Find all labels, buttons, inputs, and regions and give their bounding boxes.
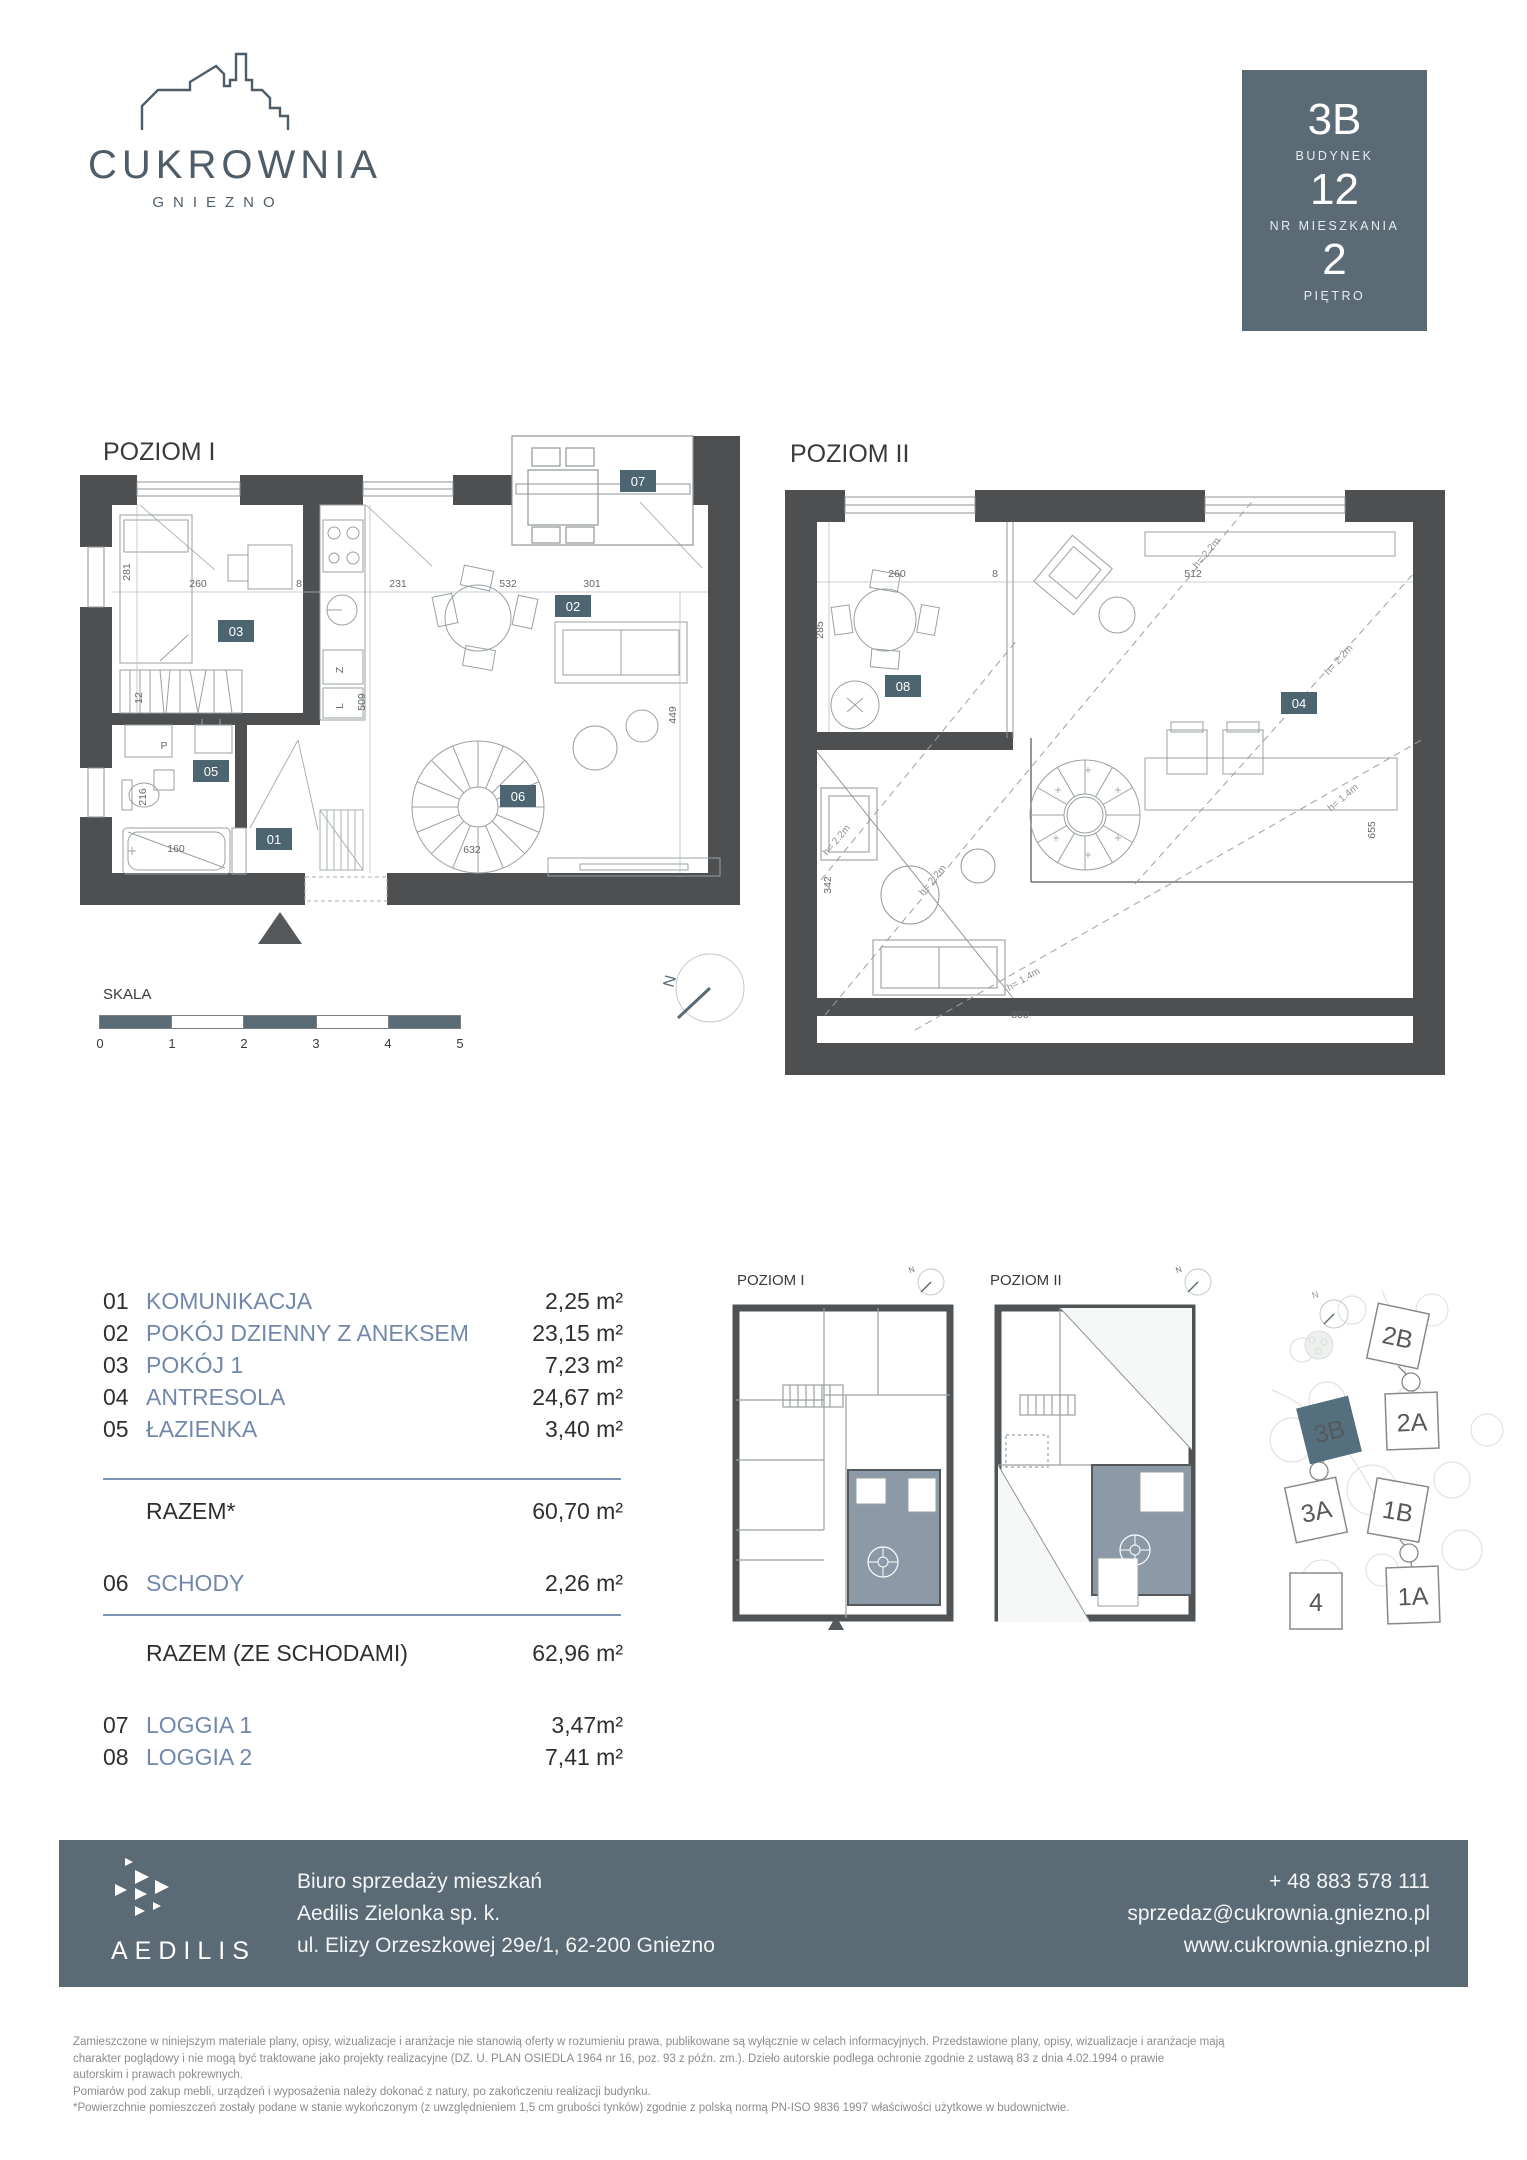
svg-text:P: P [160, 740, 167, 752]
room-name: POKÓJ DZIENNY Z ANEKSEM [146, 1320, 469, 1347]
room-area: 2,26 m² [545, 1570, 623, 1597]
room-number: 04 [103, 1384, 129, 1411]
plan2-loggia-furniture [831, 570, 939, 729]
svg-text:02: 02 [566, 599, 580, 614]
scale-tick: 5 [450, 1036, 470, 1051]
scale-seg [100, 1016, 171, 1028]
room-area: 7,23 m² [545, 1352, 623, 1379]
legal-disclaimer: Zamieszczone w niniejszym materiale plan… [73, 2034, 1473, 2117]
svg-text:2A: 2A [1396, 1408, 1428, 1437]
scale-seg [244, 1016, 315, 1028]
total-area: 62,96 m² [532, 1640, 623, 1667]
keyplan2-partitions [998, 1308, 1092, 1467]
area-row: 04 ANTRESOLA 24,67 m² [103, 1384, 623, 1414]
area-row: 05 ŁAZIENKA 3,40 m² [103, 1416, 623, 1446]
floorplan-sheet: CUKROWNIA GNIEZNO 3B BUDYNEK 12 NR MIESZ… [0, 0, 1527, 2160]
total-label: RAZEM* [146, 1498, 235, 1525]
svg-text:03: 03 [229, 624, 243, 639]
svg-text:12: 12 [133, 692, 145, 704]
svg-text:h= 2.2m: h= 2.2m [1323, 643, 1356, 677]
contact-info: + 48 883 578 111 sprzedaz@cukrownia.gnie… [1127, 1866, 1430, 1962]
room-number: 03 [103, 1352, 129, 1379]
room-name: ŁAZIENKA [146, 1416, 257, 1443]
room-area: 3,47m² [551, 1712, 623, 1739]
disclaimer-line: autorskim i prawach pokrewnych. [73, 2067, 1473, 2084]
floor-label: PIĘTRO [1304, 289, 1366, 303]
total-with-stairs-row: RAZEM (ZE SCHODAMI) 62,96 m² [103, 1640, 623, 1670]
svg-text:532: 532 [499, 578, 517, 590]
plan1-bedroom-furniture [120, 515, 292, 713]
svg-text:N: N [908, 1265, 917, 1276]
svg-text:8: 8 [992, 568, 998, 580]
email-address: sprzedaz@cukrownia.gniezno.pl [1127, 1898, 1430, 1930]
svg-text:216: 216 [137, 788, 149, 806]
disclaimer-line: Pomiarów pod zakup mebli, urządzeń i wyp… [73, 2084, 1473, 2101]
plan1-dim-texts: 260 8 231 532 301 281 12 216 160 509 449… [121, 563, 679, 856]
svg-text:4: 4 [1309, 1589, 1323, 1617]
svg-text:h= 2.2m: h= 2.2m [1191, 536, 1223, 571]
svg-text:N: N [1175, 1265, 1184, 1276]
room-number: 01 [103, 1288, 129, 1315]
floorplan-level2: 260 8 512 285 342 800 655 h= 2.2m h= 2.2… [785, 470, 1445, 1080]
svg-text:301: 301 [583, 578, 601, 590]
room-name: ANTRESOLA [146, 1384, 285, 1411]
svg-text:h= 1.4m: h= 1.4m [1005, 966, 1042, 994]
website-url: www.cukrownia.gniezno.pl [1127, 1930, 1430, 1962]
scale-label: SKALA [103, 986, 151, 1003]
area-row-stairs: 06 SCHODY 2,26 m² [103, 1570, 623, 1600]
disclaimer-line: *Powierzchnie pomieszczeń zostały podane… [73, 2100, 1473, 2117]
svg-text:231: 231 [389, 578, 407, 590]
plan2-height-lines [821, 498, 1425, 1030]
scale-tick: 1 [162, 1036, 182, 1051]
keyplan1-title: POZIOM I [737, 1272, 805, 1289]
siteplan-building-1a: 1A [1386, 1566, 1440, 1624]
svg-text:160: 160 [167, 843, 185, 855]
plan1-window-swings [140, 502, 702, 570]
siteplan-building-1b: 1B [1368, 1478, 1429, 1542]
svg-text:260: 260 [189, 578, 207, 590]
total-area: 60,70 m² [532, 1498, 623, 1525]
svg-text:N: N [661, 974, 680, 990]
apartment-label: NR MIESZKANIA [1270, 219, 1400, 233]
scale-tick: 3 [306, 1036, 326, 1051]
table-divider [103, 1478, 621, 1480]
svg-text:632: 632 [463, 844, 481, 856]
disclaimer-line: charakter poglądowy i nie mogą być trakt… [73, 2051, 1473, 2068]
plan1-windows [88, 482, 690, 817]
svg-text:1A: 1A [1397, 1582, 1429, 1611]
room-name: LOGGIA 1 [146, 1712, 252, 1739]
room-number: 06 [103, 1570, 129, 1597]
room-area: 7,41 m² [545, 1744, 623, 1771]
plan2-walls [785, 490, 1445, 1075]
room-number: 05 [103, 1416, 129, 1443]
siteplan-building-2b: 2B [1367, 1303, 1430, 1369]
svg-text:281: 281 [121, 563, 133, 581]
plan2-title: POZIOM II [790, 440, 909, 469]
room-area: 2,25 m² [545, 1288, 623, 1315]
scale-tick: 2 [234, 1036, 254, 1051]
apartment-number: 2 [1322, 236, 1346, 284]
brand-name: CUKROWNIA [88, 143, 348, 188]
plan2-room-badges: 08 04 [885, 675, 1317, 714]
office-line: Aedilis Zielonka sp. k. [297, 1898, 715, 1930]
room-number: 08 [103, 1744, 129, 1771]
table-divider [103, 1614, 621, 1616]
scale-seg [389, 1016, 460, 1028]
area-row-loggia: 08 LOGGIA 2 7,41 m² [103, 1744, 623, 1774]
office-line: ul. Elizy Orzeszkowej 29e/1, 62-200 Gnie… [297, 1930, 715, 1962]
room-name: LOGGIA 2 [146, 1744, 252, 1771]
phone-number: + 48 883 578 111 [1127, 1866, 1430, 1898]
keyplan-level2 [990, 1300, 1200, 1635]
scale-tick: 4 [378, 1036, 398, 1051]
total-row: RAZEM* 60,70 m² [103, 1498, 623, 1528]
plan2-terrace [817, 752, 1013, 998]
room-area: 24,67 m² [532, 1384, 623, 1411]
sales-office-info: Biuro sprzedaży mieszkań Aedilis Zielonk… [297, 1866, 715, 1962]
area-row: 03 POKÓJ 1 7,23 m² [103, 1352, 623, 1382]
svg-text:Z: Z [334, 666, 346, 673]
factory-silhouette-icon [128, 46, 308, 136]
room-name: KOMUNIKACJA [146, 1288, 312, 1315]
aedilis-triangles-icon [111, 1858, 191, 1922]
scale-seg [316, 1016, 389, 1028]
aedilis-logo: AEDILIS [111, 1858, 321, 1966]
plan2-dim-lines [817, 522, 1413, 732]
svg-text:07: 07 [631, 474, 645, 489]
siteplan-building-3a: 3A [1285, 1477, 1348, 1543]
svg-text:342: 342 [822, 876, 834, 894]
svg-text:N: N [1311, 1289, 1320, 1300]
entrance-arrow [258, 912, 302, 944]
building-label: BUDYNEK [1296, 149, 1374, 163]
brand-city: GNIEZNO [88, 194, 348, 211]
room-area: 23,15 m² [532, 1320, 623, 1347]
plan2-dim-texts: 260 8 512 285 342 800 655 h= 2.2m h= 2.2… [814, 536, 1378, 1021]
scale-bar [100, 1016, 460, 1028]
svg-text:08: 08 [896, 679, 910, 694]
keyplan2-compass-icon: N [1172, 1258, 1216, 1302]
svg-text:06: 06 [511, 789, 525, 804]
siteplan-compass-icon: N [1311, 1289, 1348, 1328]
keyplan-level1 [728, 1300, 958, 1635]
total-label: RAZEM (ZE SCHODAMI) [146, 1640, 408, 1667]
svg-text:1B: 1B [1380, 1496, 1415, 1529]
svg-text:285: 285 [814, 621, 826, 639]
svg-text:05: 05 [204, 764, 218, 779]
svg-text:449: 449 [667, 706, 679, 724]
disclaimer-line: Zamieszczone w niniejszym materiale plan… [73, 2034, 1473, 2051]
svg-text:260: 260 [888, 568, 906, 580]
scale-tick: 0 [90, 1036, 110, 1051]
compass-icon: N [648, 938, 758, 1048]
plan2-spiral-stair [1030, 760, 1140, 870]
siteplan-building-3b-highlighted: 3B [1297, 1397, 1361, 1464]
siteplan-building-2a: 2A [1385, 1392, 1439, 1450]
scale-seg [171, 1016, 244, 1028]
svg-text:L: L [334, 703, 346, 709]
plan2-loggia-glazing [1007, 522, 1013, 738]
room-number: 02 [103, 1320, 129, 1347]
area-row: 01 KOMUNIKACJA 2,25 m² [103, 1288, 623, 1318]
plan1-kitchen [320, 505, 365, 720]
svg-text:8: 8 [296, 578, 302, 590]
floorplan-level1: 260 8 231 532 301 281 12 216 160 509 449… [80, 320, 740, 950]
unit-info-box: 3B BUDYNEK 12 NR MIESZKANIA 2 PIĘTRO [1242, 70, 1427, 331]
svg-text:h= 1.4m: h= 1.4m [1326, 782, 1361, 814]
svg-text:800: 800 [1011, 1009, 1029, 1021]
room-name: POKÓJ 1 [146, 1352, 243, 1379]
site-plan: N 2B 2A 3B 3A [1262, 1250, 1527, 1650]
room-area: 3,40 m² [545, 1416, 623, 1443]
room-number: 07 [103, 1712, 129, 1739]
room-name: SCHODY [146, 1570, 244, 1597]
building-number: 12 [1310, 166, 1359, 214]
svg-text:04: 04 [1292, 696, 1306, 711]
svg-text:655: 655 [1366, 821, 1378, 839]
keyplan2-highlighted-unit [1092, 1465, 1192, 1606]
office-line: Biuro sprzedaży mieszkań [297, 1866, 715, 1898]
unit-code: 3B [1308, 96, 1362, 144]
svg-text:01: 01 [267, 832, 281, 847]
keyplan2-title: POZIOM II [990, 1272, 1062, 1289]
svg-text:h= 2.2m: h= 2.2m [821, 823, 853, 858]
plan1-dim-lines [112, 505, 708, 873]
aedilis-logo-text: AEDILIS [111, 1937, 321, 1966]
siteplan-building-4: 4 [1290, 1573, 1342, 1629]
svg-text:509: 509 [356, 693, 368, 711]
keyplan1-highlighted-unit [848, 1470, 940, 1605]
keyplan1-compass-icon: N [905, 1258, 949, 1302]
footer-bar: AEDILIS Biuro sprzedaży mieszkań Aedilis… [59, 1840, 1468, 1987]
brand-logo: CUKROWNIA GNIEZNO [88, 46, 348, 211]
area-row: 02 POKÓJ DZIENNY Z ANEKSEM 23,15 m² [103, 1320, 623, 1350]
area-row-loggia: 07 LOGGIA 1 3,47m² [103, 1712, 623, 1742]
